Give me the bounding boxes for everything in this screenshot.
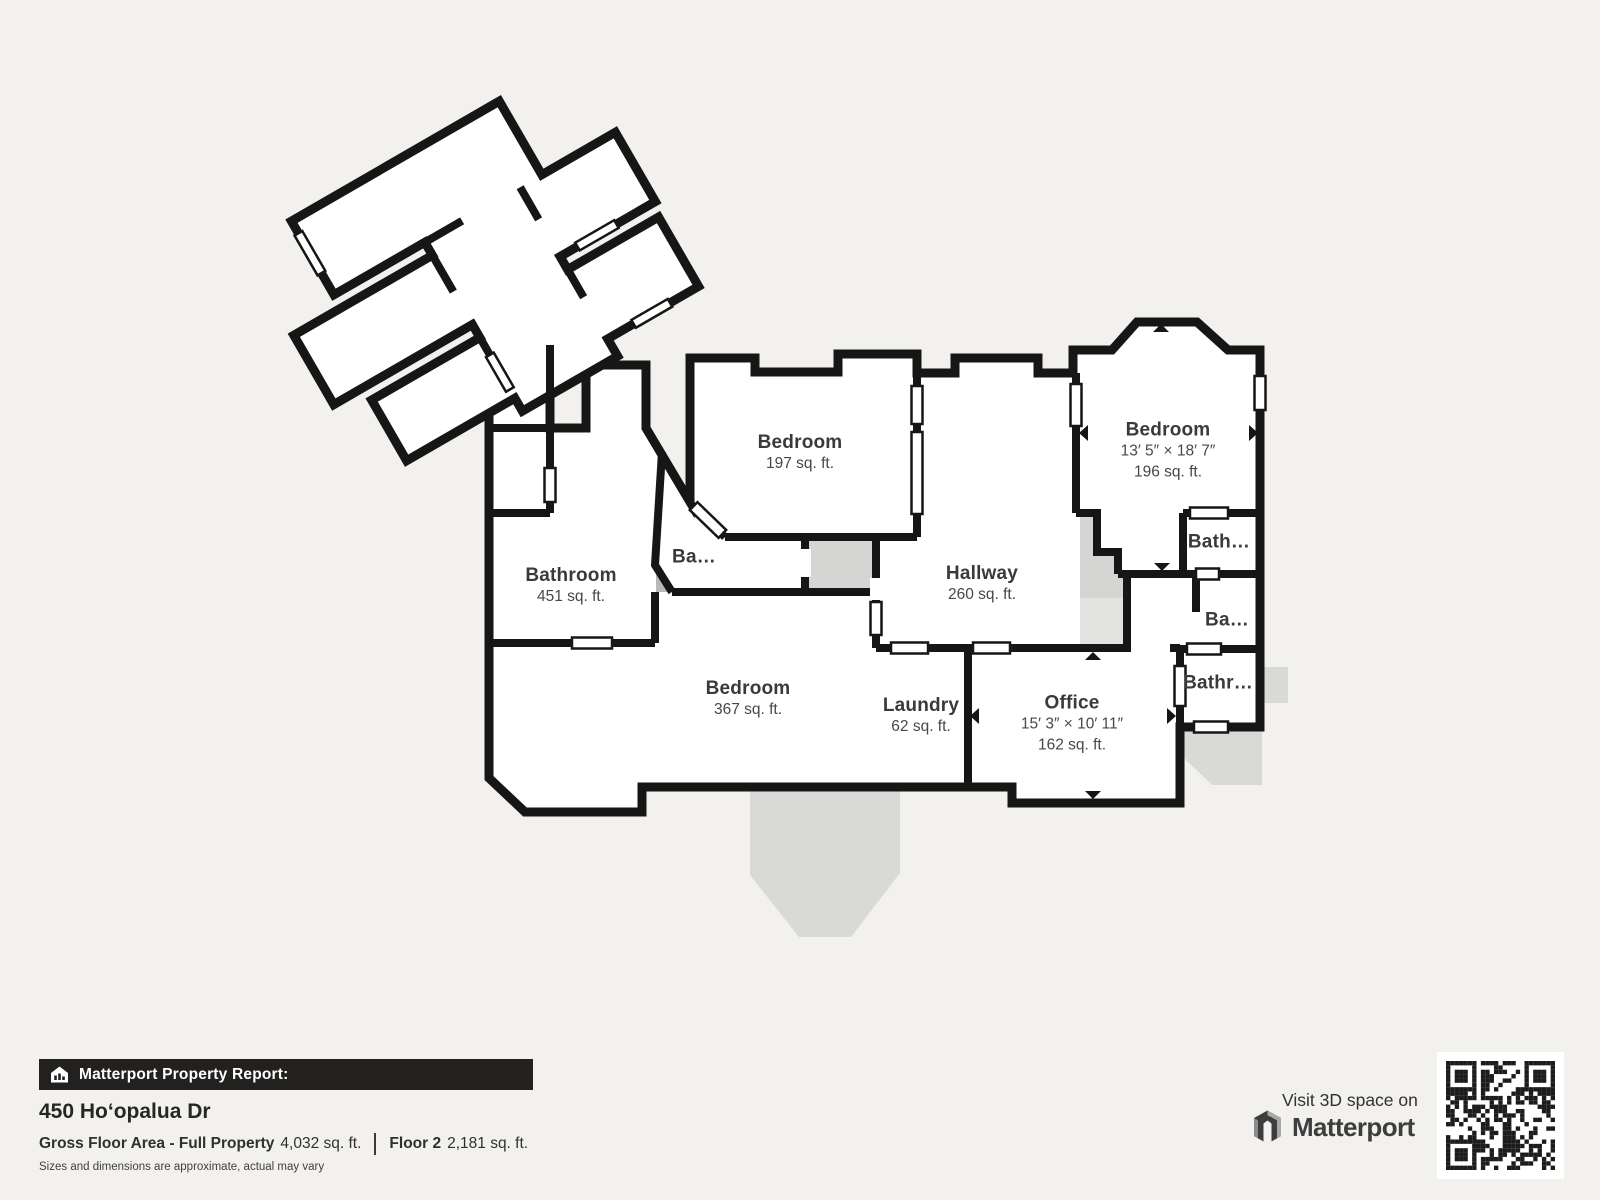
- floor-value: 2,181 sq. ft.: [447, 1135, 528, 1153]
- window: [1187, 644, 1221, 655]
- window: [1196, 569, 1219, 580]
- window: [1175, 666, 1186, 706]
- stairs-landing-light: [1080, 598, 1127, 644]
- property-address: 450 Hoʻopalua Dr: [39, 1100, 211, 1124]
- floor-area-metrics: Gross Floor Area - Full Property 4,032 s…: [39, 1133, 528, 1155]
- window: [572, 638, 612, 649]
- window: [545, 468, 556, 502]
- window: [1194, 722, 1228, 733]
- visit-3d-space-text: Visit 3D space on: [1282, 1090, 1422, 1111]
- window: [1071, 384, 1082, 426]
- disclaimer-text: Sizes and dimensions are approximate, ac…: [39, 1161, 324, 1173]
- window: [912, 432, 923, 514]
- window: [1255, 376, 1266, 410]
- matterport-logo: Matterport: [1252, 1110, 1415, 1144]
- gross-floor-area-label: Gross Floor Area - Full Property: [39, 1135, 274, 1153]
- window: [912, 386, 923, 424]
- window: [973, 643, 1010, 654]
- stair-landing: [809, 541, 872, 588]
- door-opening: [799, 549, 811, 577]
- report-title-bar: Matterport Property Report:: [39, 1059, 533, 1090]
- matterport-m-icon: [1252, 1110, 1283, 1144]
- window: [891, 643, 928, 654]
- qr-code: [1437, 1052, 1564, 1179]
- house-chart-icon: [50, 1066, 69, 1083]
- deck: [750, 791, 900, 937]
- window: [1190, 508, 1228, 519]
- door-opening: [1131, 642, 1170, 654]
- floorplan-report-page: Bedroom 197 sq. ft. Bedroom 13′ 5″ × 18′…: [0, 0, 1600, 1200]
- matterport-wordmark: Matterport: [1292, 1112, 1415, 1143]
- qr-code-pattern: [1446, 1061, 1555, 1170]
- door-opening: [870, 578, 882, 600]
- deck: [1183, 731, 1262, 785]
- floorplan-drawing: [0, 0, 1600, 1200]
- deck: [1262, 667, 1288, 703]
- floor-label: Floor 2: [389, 1135, 441, 1153]
- report-title: Matterport Property Report:: [79, 1066, 289, 1084]
- gross-floor-area-value: 4,032 sq. ft.: [280, 1135, 361, 1153]
- window: [871, 602, 882, 635]
- divider: [374, 1133, 376, 1155]
